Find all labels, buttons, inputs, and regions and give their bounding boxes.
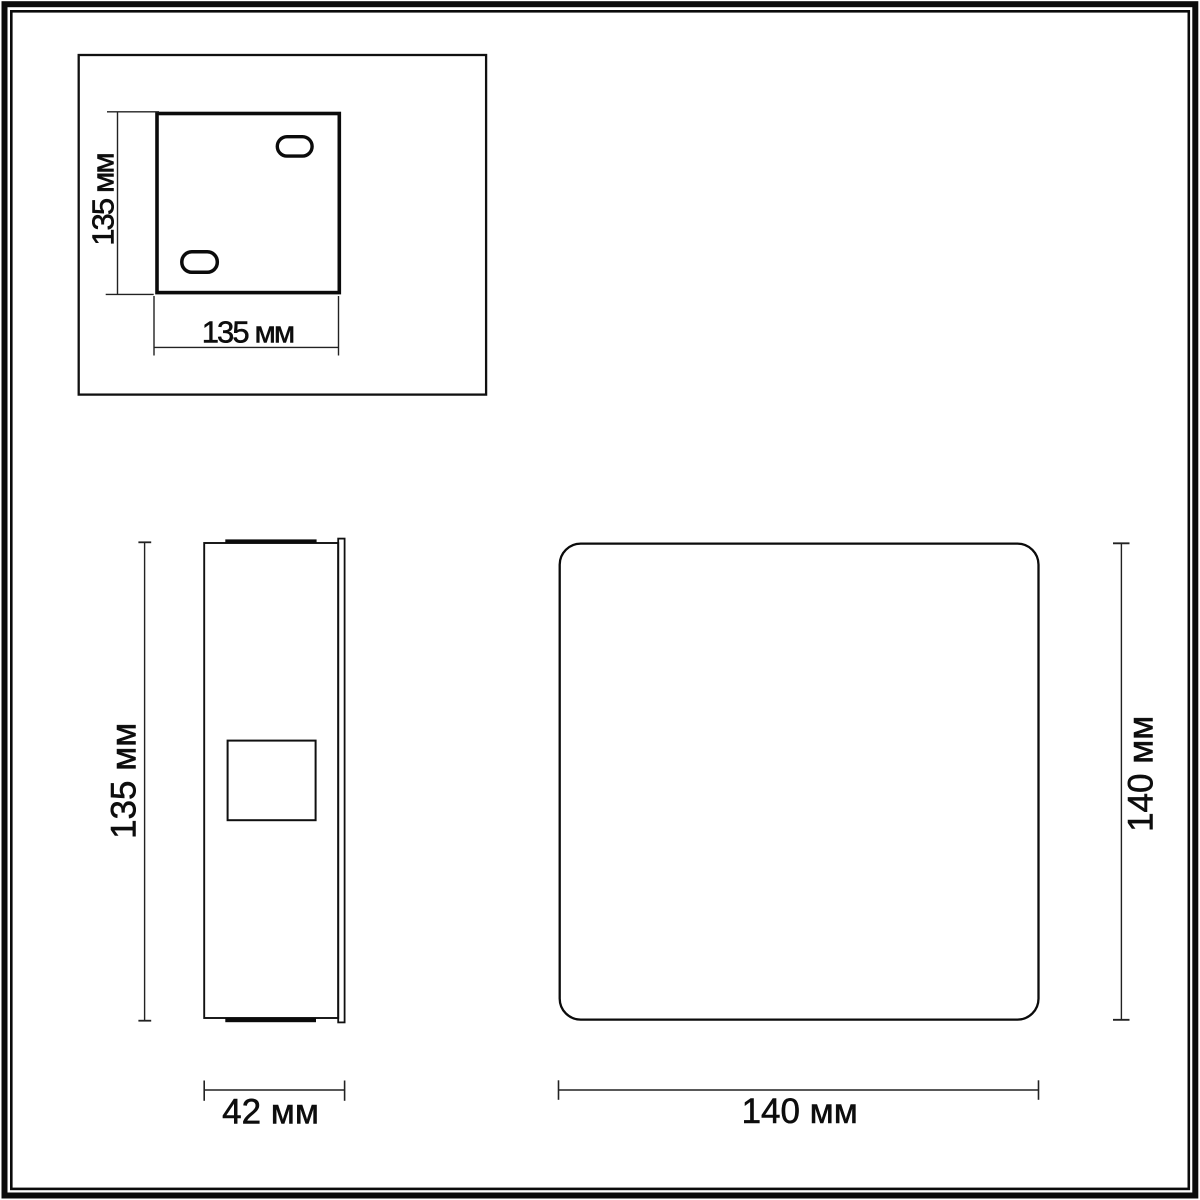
svg-text:135 мм: 135 мм [202, 315, 294, 350]
svg-text:140 мм: 140 мм [1122, 716, 1161, 832]
svg-text:135 мм: 135 мм [85, 154, 120, 246]
svg-text:140 мм: 140 мм [742, 1092, 858, 1131]
svg-text:135 мм: 135 мм [105, 723, 144, 839]
svg-text:42 мм: 42 мм [222, 1093, 319, 1132]
